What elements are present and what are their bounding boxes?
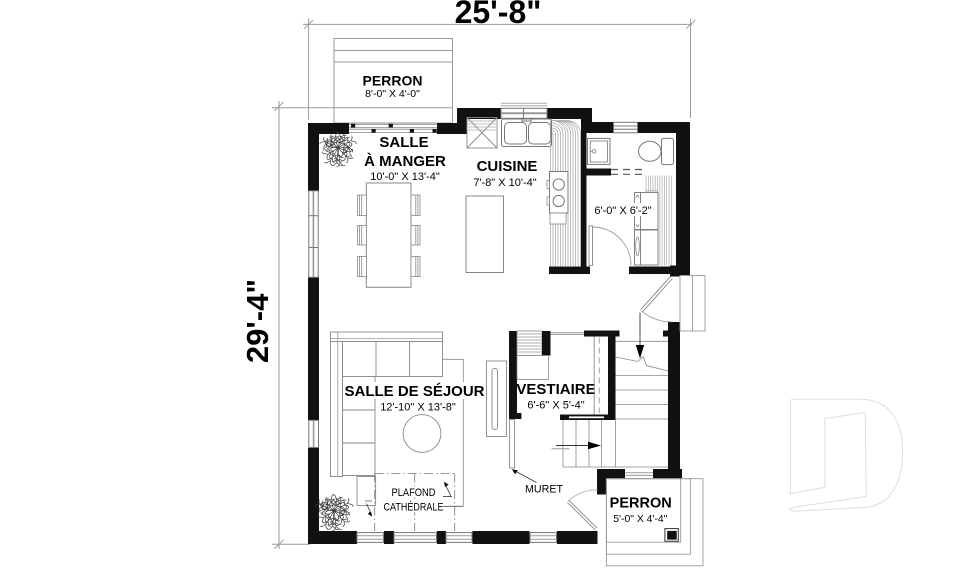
svg-text:12'-10" X 13'-8": 12'-10" X 13'-8" [380,402,456,414]
svg-text:SALLE: SALLE [379,134,428,151]
svg-text:29'-4": 29'-4" [240,279,275,363]
svg-text:PERRON: PERRON [363,73,423,89]
svg-text:8'-0" X 4'-0": 8'-0" X 4'-0" [365,88,420,100]
svg-text:À MANGER: À MANGER [364,153,446,170]
svg-text:PERRON: PERRON [610,496,672,512]
svg-text:PLAFOND: PLAFOND [392,487,436,499]
svg-text:SALLE DE SÉJOUR: SALLE DE SÉJOUR [344,383,484,400]
svg-text:CATHÉDRALE: CATHÉDRALE [384,501,444,514]
svg-text:10'-0" X 13'-4": 10'-0" X 13'-4" [370,171,440,183]
svg-text:CUISINE: CUISINE [477,158,538,175]
svg-text:25'-8": 25'-8" [455,0,542,30]
svg-text:7'-8" X 10'-4": 7'-8" X 10'-4" [473,177,536,189]
svg-text:VESTIAIRE: VESTIAIRE [516,381,595,398]
svg-text:MURET: MURET [525,484,563,496]
svg-text:6'-0" X 6'-2": 6'-0" X 6'-2" [594,205,651,217]
svg-text:5'-0" X 4'-4": 5'-0" X 4'-4" [613,514,667,525]
svg-text:6'-6" X 5'-4": 6'-6" X 5'-4" [527,400,584,412]
